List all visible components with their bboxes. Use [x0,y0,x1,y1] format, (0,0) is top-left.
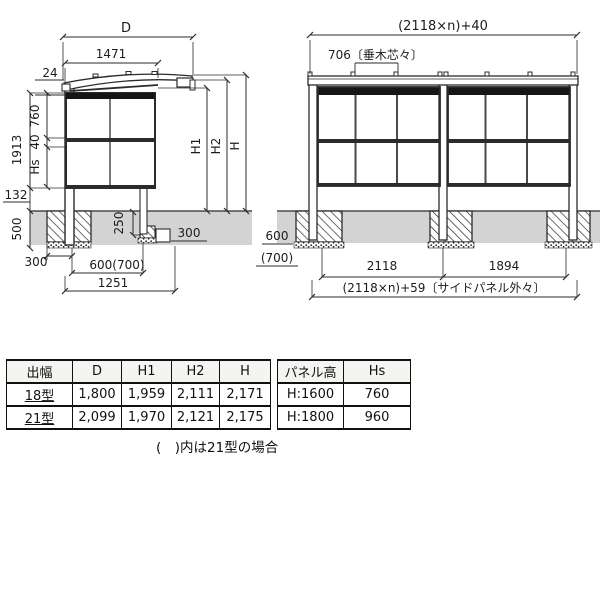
col-header: 出幅 [7,360,73,383]
dim-760: 760 [28,105,42,128]
panel-height-table: パネル高 Hs H:1600 760 H:1800 960 [277,359,411,430]
cell-hs: 760 [344,383,411,406]
cell-panel-height: H:1600 [278,383,344,406]
dim-h1: H1 [189,138,203,155]
size-table-header-row: 出幅 D H1 H2 H [7,360,271,383]
cell-panel-height: H:1800 [278,406,344,429]
cell-value: 1,959 [122,383,172,406]
dim-overall-width: (2118×n)+40 [398,19,488,34]
col-header: H2 [172,360,220,383]
dim-600-700: 600(700) [89,258,144,272]
rafter-tick [528,72,532,76]
dim-h2: H2 [209,138,223,155]
dim-1251: 1251 [98,276,129,290]
technical-drawing: D 1471 24 760 40 Hs 1913 132 500 300 250… [0,0,600,310]
dim-hs: Hs [28,159,42,174]
dim-overall-bottom: (2118×n)+59〔サイドパネル外々〕 [343,281,546,295]
gravel-strip [294,242,344,248]
panel-frame [448,87,570,186]
footnote: ( )内は21型の場合 [156,436,278,456]
col-header: Hs [344,360,411,383]
cell-type: 21型 [7,406,73,429]
dim-1471: 1471 [96,47,127,61]
dim-700: (700) [261,251,293,265]
panel-header-bar [448,87,570,95]
dim-600: 600 [266,229,289,243]
product-dimension-diagram: D 1471 24 760 40 Hs 1913 132 500 300 250… [0,0,600,600]
cell-value: 2,111 [172,383,220,406]
col-header: H1 [122,360,172,383]
roof-clip [152,72,157,75]
side-view-structure [30,72,252,249]
size-table: 出幅 D H1 H2 H 18型 1,800 1,959 2,111 2,171… [6,359,271,430]
dim-40: 40 [28,134,42,149]
rafter-tick [571,72,575,76]
side-panel-header [66,93,155,99]
cell-value: 2,171 [220,383,271,406]
roof-edge-band [308,76,578,85]
dim-250: 250 [112,212,126,235]
size-table-row: 18型 1,800 1,959 2,111 2,171 [7,383,271,406]
col-header: パネル高 [278,360,344,383]
post [309,80,317,240]
cell-value: 1,800 [73,383,122,406]
panel-table-header-row: パネル高 Hs [278,360,411,383]
cell-value: 2,099 [73,406,122,429]
cell-value: 2,175 [220,406,271,429]
cell-value: 1,970 [122,406,172,429]
cell-hs: 960 [344,406,411,429]
panel-table-row: H:1800 960 [278,406,411,429]
footing-hatch [430,211,472,242]
rafter-tick [444,72,448,76]
size-table-row: 21型 2,099 1,970 2,121 2,175 [7,406,271,429]
rear-gutter-lip [190,80,195,90]
dim-h: H [228,141,242,150]
panel-table-row: H:1600 760 [278,383,411,406]
dim-132: 132 [5,188,28,202]
front-gutter [62,84,70,91]
cell-type: 18型 [7,383,73,406]
front-view-structure [277,72,600,248]
dim-24: 24 [42,66,57,80]
panel-header-bar [318,87,440,95]
dim-300-block: 300 [178,226,201,240]
front-view-labels: (2118×n)+40 706〔垂木芯々〕 600 (700) 2118 189… [261,19,546,295]
panel-frame [318,87,440,186]
gravel-strip [428,242,474,248]
rafter-tick [351,72,355,76]
col-header: H [220,360,271,383]
roof-clip [126,72,131,75]
gravel-strip-small [138,238,157,243]
dim-300-offset: 300 [25,255,48,269]
gravel-strip [545,242,592,248]
base-block [156,229,170,242]
cell-value: 2,121 [172,406,220,429]
dim-2118: 2118 [367,259,398,273]
footing-hatch [296,211,342,242]
rafter-tick [485,72,489,76]
col-header: D [73,360,122,383]
dim-1913: 1913 [10,135,24,166]
roof-clip [93,74,98,77]
rafter-tick [394,72,398,76]
dim-1894: 1894 [489,259,520,273]
dim-rafter-pitch: 706〔垂木芯々〕 [328,48,423,62]
rafter-tick [438,72,442,76]
dim-500: 500 [10,218,24,241]
dim-d: D [121,21,131,36]
